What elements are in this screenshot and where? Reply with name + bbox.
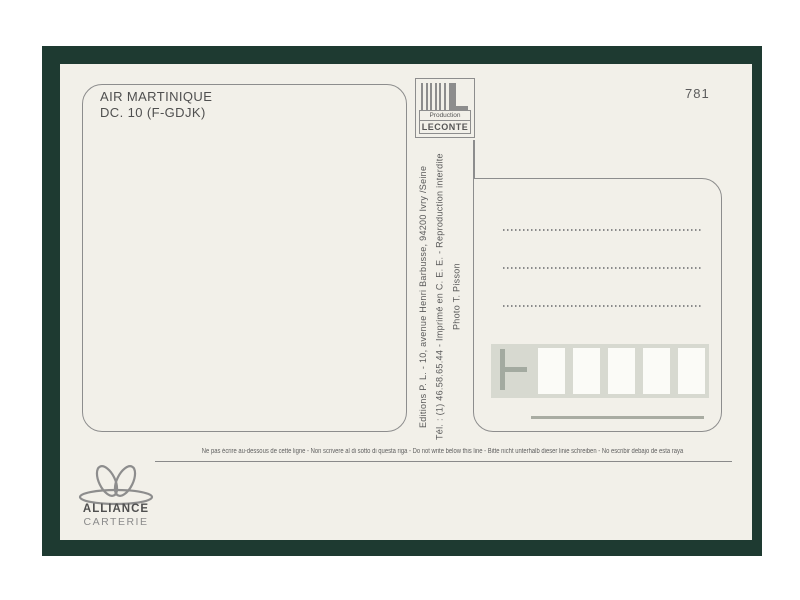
message-area	[82, 84, 407, 432]
caption-airline: AIR MARTINIQUE	[100, 89, 212, 105]
postal-mark-icon	[505, 367, 527, 372]
address-dotted-line	[503, 229, 701, 231]
imprint-address: Editions P. L. - 10, avenue Henri Barbus…	[415, 146, 432, 448]
publisher-imprint: Editions P. L. - 10, avenue Henri Barbus…	[415, 146, 465, 448]
address-dotted-line	[503, 267, 701, 269]
imprint-info: Tél. : (1) 46.58.65.44 - Imprimé en C. E…	[432, 146, 449, 448]
postal-code-band	[491, 344, 709, 398]
logo-production-label: Production	[420, 111, 470, 121]
postcard-back: AIR MARTINIQUE DC. 10 (F-GDJK) 781 Produ…	[60, 64, 752, 540]
postal-code-box	[608, 348, 635, 394]
postal-code-box	[643, 348, 670, 394]
brand-name: ALLIANCE	[68, 503, 164, 515]
caption-aircraft: DC. 10 (F-GDJK)	[100, 105, 212, 121]
logo-leconte-label: LECONTE	[420, 121, 470, 133]
alliance-carterie-logo: ALLIANCE CARTERIE	[68, 464, 164, 528]
brand-subtitle: CARTERIE	[68, 516, 164, 528]
postal-code-box	[678, 348, 705, 394]
production-leconte-logo: Production LECONTE	[415, 78, 475, 138]
postal-code-boxes	[538, 348, 705, 394]
address-area	[473, 178, 722, 432]
column-divider-line	[473, 140, 475, 179]
divider-rule	[155, 461, 732, 462]
leconte-logo-text: Production LECONTE	[419, 110, 471, 134]
imprint-photo-credit: Photo T. Pisson	[448, 146, 465, 448]
postal-underline	[531, 416, 704, 419]
divider-note: Ne pas écrire au-dessous de cette ligne …	[201, 448, 684, 455]
postal-code-box	[538, 348, 565, 394]
postal-code-box	[573, 348, 600, 394]
address-dotted-line	[503, 305, 701, 307]
postcard-dark-frame: AIR MARTINIQUE DC. 10 (F-GDJK) 781 Produ…	[42, 46, 762, 556]
card-number: 781	[685, 86, 710, 101]
caption: AIR MARTINIQUE DC. 10 (F-GDJK)	[100, 89, 212, 122]
alliance-rings-icon	[76, 464, 156, 506]
